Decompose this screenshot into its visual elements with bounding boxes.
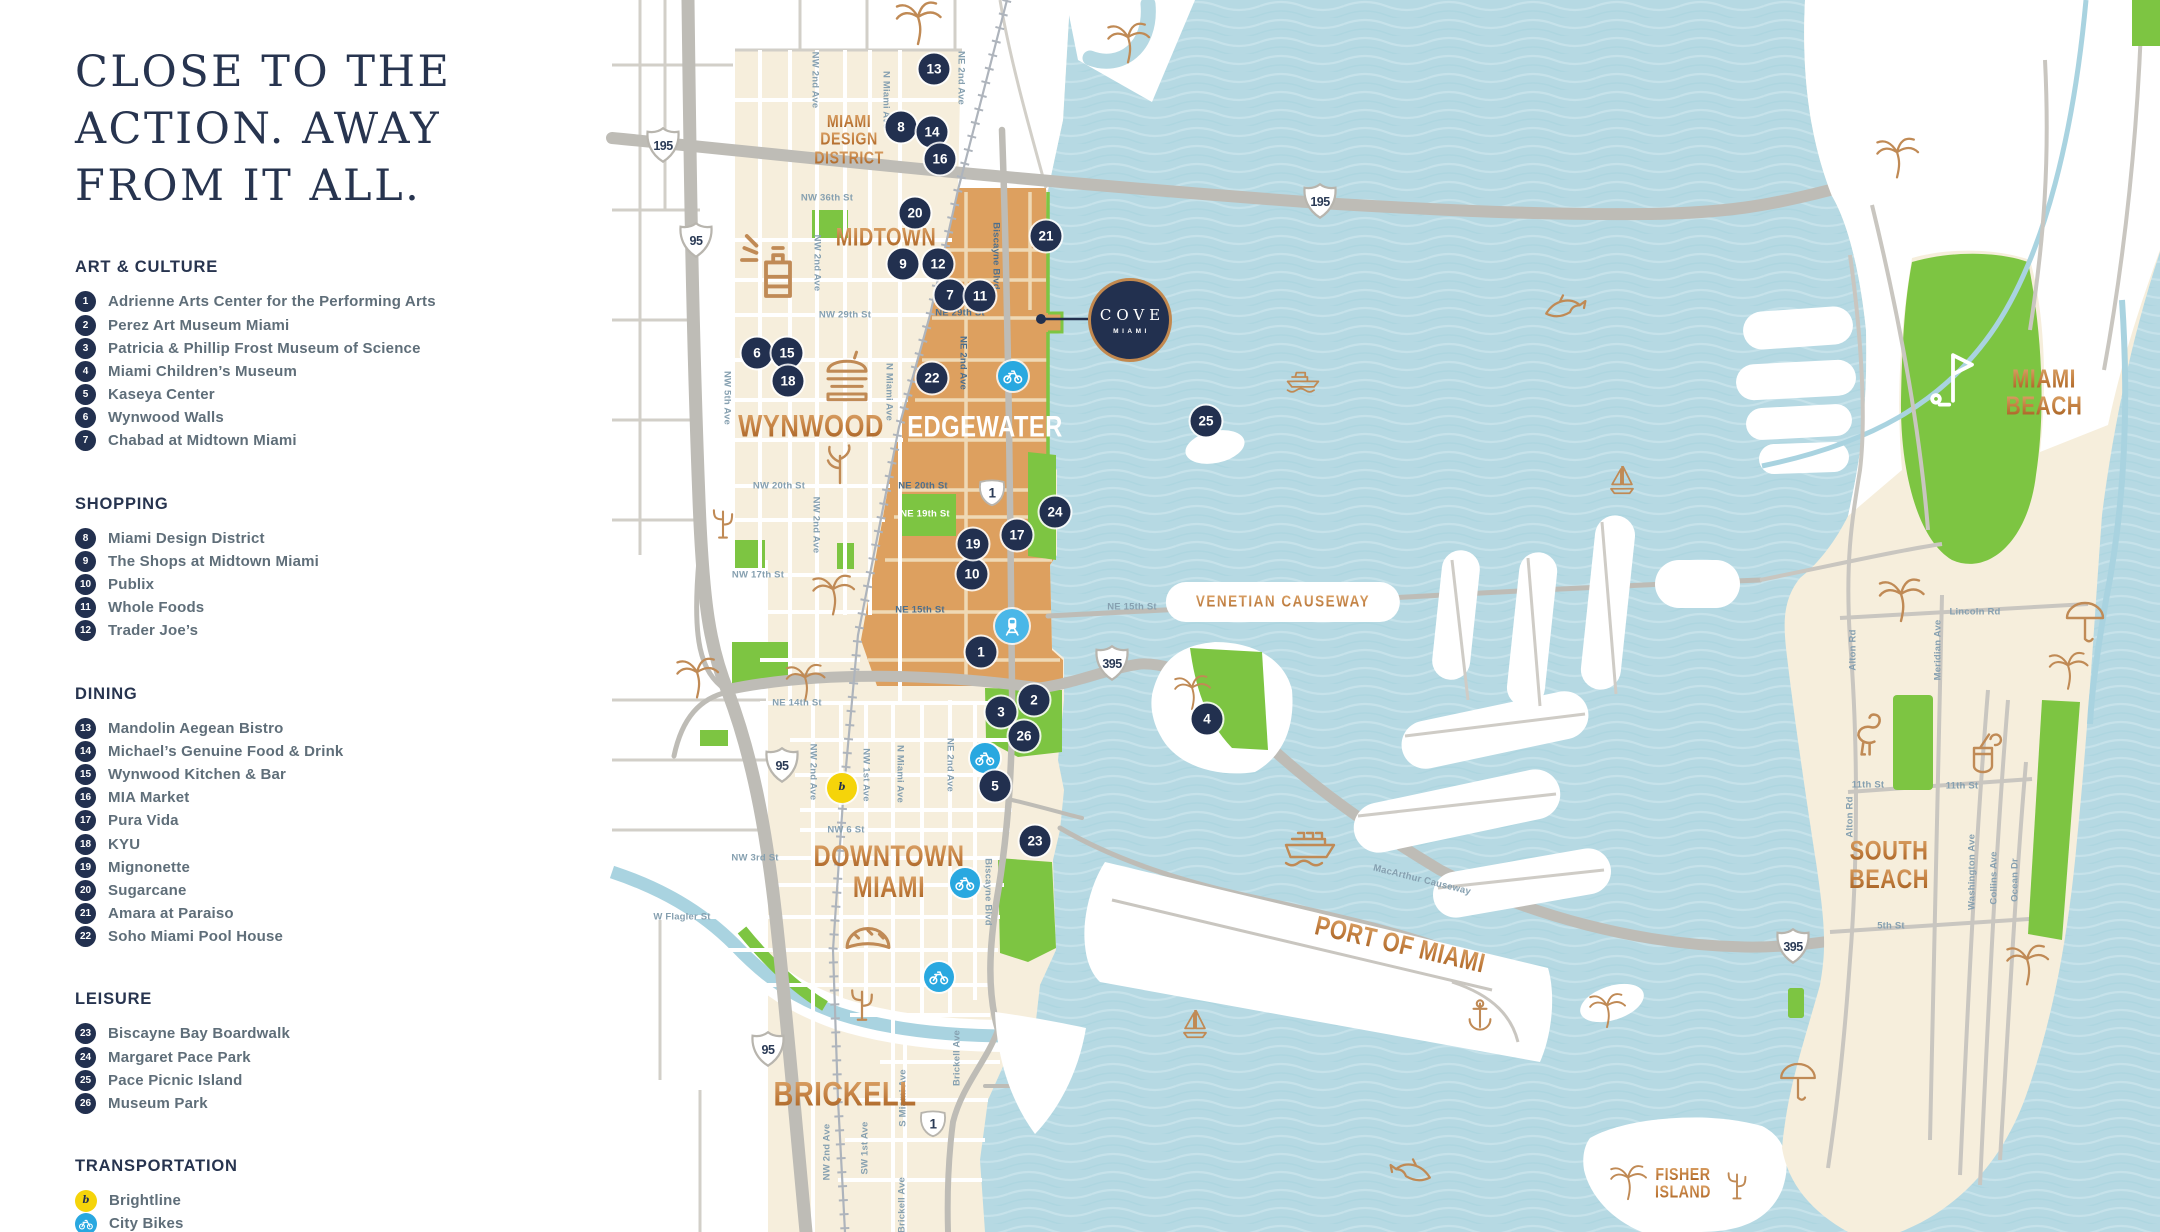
list-item: 1Adrienne Arts Center for the Performing…: [75, 290, 515, 313]
map-marker-26: 26: [1009, 721, 1040, 752]
metromover-icon: [995, 609, 1029, 643]
page-title: CLOSE TO THE ACTION. AWAY FROM IT ALL.: [75, 44, 515, 214]
list-item: 11Whole Foods: [75, 596, 515, 619]
marker-badge: 8: [75, 528, 96, 549]
marker-badge: 9: [75, 551, 96, 572]
list-item: 22Soho Miami Pool House: [75, 925, 515, 948]
map-marker-17: 17: [1002, 520, 1033, 551]
list-item: 10Publix: [75, 573, 515, 596]
poi-label: Trader Joe’s: [108, 622, 198, 639]
shield-number: 395: [1783, 940, 1802, 954]
street-label: NW 2nd Ave: [810, 52, 821, 109]
list-item: 15Wynwood Kitchen & Bar: [75, 763, 515, 786]
citybike-icon: [950, 868, 980, 898]
list-item: 16MIA Market: [75, 786, 515, 809]
poi-list: 13Mandolin Aegean Bistro14Michael’s Genu…: [75, 717, 515, 949]
poi-section: LEISURE23Biscayne Bay Boardwalk24Margare…: [75, 990, 515, 1115]
poi-label: Sugarcane: [108, 882, 187, 899]
list-item: 2Perez Art Museum Miami: [75, 313, 515, 336]
marker-badge: 19: [75, 857, 96, 878]
street-label: 5th St: [1877, 921, 1905, 932]
section-title: DINING: [75, 685, 515, 704]
poi-label: Publix: [108, 576, 154, 593]
map-marker-12: 12: [923, 249, 954, 280]
highway-shield-195: 195: [1302, 183, 1338, 219]
street-label: Biscayne Blvd: [991, 222, 1002, 290]
poi-legend: ART & CULTURE1Adrienne Arts Center for t…: [75, 258, 515, 1232]
street-label: NW 2nd Ave: [811, 497, 822, 554]
citybike-icon: [998, 361, 1028, 391]
marker-badge: 13: [75, 718, 96, 739]
marker-badge: 7: [75, 430, 96, 451]
poi-section: SHOPPING8Miami Design District9The Shops…: [75, 495, 515, 643]
street-label: NE 19th St: [900, 509, 950, 520]
list-item: 20Sugarcane: [75, 879, 515, 902]
street-label: Brickell Ave: [952, 1030, 963, 1086]
area-label-miami-design-district: MIAMIDESIGNDISTRICT: [814, 113, 884, 168]
map-marker-16: 16: [925, 144, 956, 175]
poi-list: 1Adrienne Arts Center for the Performing…: [75, 290, 515, 452]
marker-badge: 10: [75, 574, 96, 595]
street-label: NE 15th St: [895, 605, 945, 616]
street-label: 11th St: [1946, 781, 1979, 792]
street-label: Biscayne Blvd: [983, 858, 994, 926]
marker-badge: 23: [75, 1023, 96, 1044]
shield-number: 95: [762, 1043, 775, 1057]
poi-label: Michael’s Genuine Food & Drink: [108, 743, 343, 760]
poi-label: Adrienne Arts Center for the Performing …: [108, 293, 436, 310]
area-label-venetian-causeway: VENETIAN CAUSEWAY: [1166, 582, 1400, 622]
map-marker-8: 8: [886, 112, 917, 143]
street-label: N Miami Ave: [884, 363, 895, 421]
area-label-miami-beach: MIAMIBEACH: [2006, 366, 2083, 419]
poi-list: 23Biscayne Bay Boardwalk24Margaret Pace …: [75, 1022, 515, 1115]
marker-badge: 14: [75, 741, 96, 762]
street-label: N Miami Ave: [895, 745, 906, 803]
highway-shield-1: 1: [918, 1108, 949, 1139]
map-marker-18: 18: [773, 366, 804, 397]
poi-label: Margaret Pace Park: [108, 1049, 251, 1066]
shield-number: 195: [653, 139, 672, 153]
area-label-port-of-miami: PORT OF MIAMI: [1312, 912, 1488, 978]
marker-badge: 20: [75, 880, 96, 901]
street-label: NW 6 St: [827, 825, 864, 836]
title-line: CLOSE TO THE: [75, 44, 515, 101]
poi-label: Wynwood Walls: [108, 409, 224, 426]
street-label: Brickell Ave: [897, 1177, 908, 1232]
citybike-icon: [924, 962, 954, 992]
poi-label: Brightline: [109, 1192, 181, 1209]
citybike-icon: [970, 743, 1000, 773]
marker-badge: 1: [75, 291, 96, 312]
highway-shield-395: 395: [1775, 928, 1811, 964]
poi-label: Pura Vida: [108, 812, 179, 829]
marker-badge: 12: [75, 620, 96, 641]
title-line: ACTION. AWAY: [75, 101, 515, 158]
map-marker-1: 1: [966, 637, 997, 668]
list-item: 7Chabad at Midtown Miami: [75, 429, 515, 452]
poi-label: Amara at Paraiso: [108, 905, 234, 922]
marker-badge: 22: [75, 926, 96, 947]
shield-number: 1: [988, 485, 995, 500]
section-title: ART & CULTURE: [75, 258, 515, 277]
brightline-icon: b: [827, 773, 857, 803]
marker-badge: 17: [75, 810, 96, 831]
brightline-icon: b: [75, 1190, 97, 1212]
street-label: NW 29th St: [819, 310, 871, 321]
poi-list: bBrightlineCity BikesAdrienne Arsht Metr…: [75, 1189, 515, 1232]
cove-sub: MIAMI: [1113, 328, 1150, 335]
list-item: 13Mandolin Aegean Bistro: [75, 717, 515, 740]
highway-shield-95: 95: [750, 1031, 786, 1067]
poi-label: Miami Design District: [108, 530, 265, 547]
poi-label: KYU: [108, 836, 140, 853]
shield-number: 95: [690, 234, 703, 248]
street-label: NW 1st Ave: [861, 748, 872, 802]
map-marker-9: 9: [888, 249, 919, 280]
marker-badge: 6: [75, 407, 96, 428]
list-item: 5Kaseya Center: [75, 383, 515, 406]
sidebar: CLOSE TO THE ACTION. AWAY FROM IT ALL. A…: [75, 44, 515, 1232]
street-label: NW 2nd Ave: [808, 744, 819, 801]
map-marker-13: 13: [919, 54, 950, 85]
street-label: Collins Ave: [1989, 851, 2000, 904]
street-label: NW 20th St: [753, 481, 805, 492]
list-item: bBrightline: [75, 1189, 515, 1212]
section-title: TRANSPORTATION: [75, 1157, 515, 1176]
map-marker-3: 3: [986, 697, 1017, 728]
poi-section: TRANSPORTATIONbBrightlineCity BikesAdrie…: [75, 1157, 515, 1232]
marker-badge: 16: [75, 787, 96, 808]
map-marker-24: 24: [1040, 497, 1071, 528]
map-marker-6: 6: [742, 338, 773, 369]
map-marker-2: 2: [1019, 685, 1050, 716]
map-marker-11: 11: [965, 281, 996, 312]
list-item: City Bikes: [75, 1212, 515, 1232]
poi-label: The Shops at Midtown Miami: [108, 553, 319, 570]
list-item: 9The Shops at Midtown Miami: [75, 550, 515, 573]
street-label: NW 17th St: [732, 570, 784, 581]
poi-label: Kaseya Center: [108, 386, 215, 403]
marker-badge: 11: [75, 597, 96, 618]
list-item: 17Pura Vida: [75, 809, 515, 832]
area-label-wynwood: WYNWOOD: [738, 411, 884, 444]
poi-label: Patricia & Phillip Frost Museum of Scien…: [108, 340, 421, 357]
poi-label: Mignonette: [108, 859, 190, 876]
street-label: W Flagler St: [653, 912, 710, 923]
street-label: NW 2nd Ave: [812, 235, 823, 292]
list-item: 25Pace Picnic Island: [75, 1069, 515, 1092]
shield-number: 195: [1310, 195, 1329, 209]
street-label: NW 5th Ave: [722, 371, 733, 425]
map-marker-5: 5: [980, 771, 1011, 802]
street-label: NW 2nd Ave: [822, 1124, 833, 1181]
cove-name: COVE: [1100, 306, 1165, 324]
marker-badge: 2: [75, 315, 96, 336]
list-item: 19Mignonette: [75, 856, 515, 879]
map-marker-10: 10: [957, 559, 988, 590]
poi-label: Perez Art Museum Miami: [108, 317, 289, 334]
street-label: Washington Ave: [1967, 834, 1978, 910]
highway-shield-95: 95: [678, 222, 714, 258]
poi-label: Miami Children’s Museum: [108, 363, 297, 380]
poi-section: ART & CULTURE1Adrienne Arts Center for t…: [75, 258, 515, 452]
map-marker-20: 20: [900, 198, 931, 229]
street-label: Alton Rd: [1845, 796, 1856, 837]
marker-badge: 3: [75, 338, 96, 359]
poi-section: DINING13Mandolin Aegean Bistro14Michael’…: [75, 685, 515, 949]
list-item: 12Trader Joe’s: [75, 619, 515, 642]
street-label: Alton Rd: [1848, 629, 1859, 670]
street-label: NE 15th St: [1107, 602, 1157, 613]
map-marker-7: 7: [935, 280, 966, 311]
highway-shield-1: 1: [977, 477, 1008, 508]
poi-label: City Bikes: [109, 1215, 184, 1232]
area-label-brickell: BRICKELL: [773, 1078, 916, 1113]
area-label-downtown-miami: DOWNTOWNMIAMI: [813, 843, 964, 904]
section-title: SHOPPING: [75, 495, 515, 514]
area-label-fisher-island: FISHERISLAND: [1655, 1166, 1711, 1202]
cove-miami-badge: COVE MIAMI: [1088, 278, 1172, 362]
street-label: NE 20th St: [898, 481, 948, 492]
street-label: NW 36th St: [801, 193, 853, 204]
shield-number: 395: [1102, 657, 1121, 671]
poi-list: 8Miami Design District9The Shops at Midt…: [75, 527, 515, 643]
area-label-edgewater: EDGEWATER: [907, 413, 1063, 443]
list-item: 18KYU: [75, 832, 515, 855]
highway-shield-195: 195: [645, 127, 681, 163]
poi-label: Biscayne Bay Boardwalk: [108, 1025, 290, 1042]
map-marker-23: 23: [1020, 826, 1051, 857]
street-label: NE 2nd Ave: [958, 336, 969, 390]
map-marker-15: 15: [772, 338, 803, 369]
marker-badge: 21: [75, 903, 96, 924]
poi-label: Pace Picnic Island: [108, 1072, 243, 1089]
list-item: 26Museum Park: [75, 1092, 515, 1115]
street-label: 11th St: [1852, 780, 1885, 791]
poi-label: Museum Park: [108, 1095, 208, 1112]
street-label: NW 3rd St: [731, 853, 778, 864]
marker-badge: 24: [75, 1047, 96, 1068]
street-label: NE 2nd Ave: [945, 738, 956, 792]
street-label: NE 2nd Ave: [956, 51, 967, 105]
list-item: 6Wynwood Walls: [75, 406, 515, 429]
shield-number: 95: [776, 759, 789, 773]
marker-badge: 5: [75, 384, 96, 405]
street-label: SW 1st Ave: [860, 1121, 871, 1174]
list-item: 24Margaret Pace Park: [75, 1046, 515, 1069]
poi-label: Soho Miami Pool House: [108, 928, 283, 945]
poi-label: Chabad at Midtown Miami: [108, 432, 297, 449]
marker-badge: 26: [75, 1093, 96, 1114]
title-line: FROM IT ALL.: [75, 158, 515, 215]
map-marker-4: 4: [1192, 704, 1223, 735]
poi-label: MIA Market: [108, 789, 189, 806]
highway-shield-395: 395: [1094, 645, 1130, 681]
street-label: Meridian Ave: [1933, 620, 1944, 681]
marker-badge: 18: [75, 834, 96, 855]
map-marker-25: 25: [1191, 406, 1222, 437]
map-marker-21: 21: [1031, 221, 1062, 252]
marker-badge: 25: [75, 1070, 96, 1091]
page: COVE MIAMI NW 36th StNW 29th StNE 29th S…: [0, 0, 2160, 1232]
list-item: 23Biscayne Bay Boardwalk: [75, 1022, 515, 1045]
list-item: 3Patricia & Phillip Frost Museum of Scie…: [75, 337, 515, 360]
street-label: Ocean Dr: [2010, 858, 2021, 902]
street-label: Lincoln Rd: [1949, 607, 2000, 618]
list-item: 14Michael’s Genuine Food & Drink: [75, 740, 515, 763]
area-label-midtown: MIDTOWN: [836, 225, 936, 251]
poi-label: Mandolin Aegean Bistro: [108, 720, 284, 737]
poi-label: Wynwood Kitchen & Bar: [108, 766, 286, 783]
section-title: LEISURE: [75, 990, 515, 1009]
street-label: MacArthur Causeway: [1372, 863, 1472, 898]
highway-shield-95: 95: [764, 747, 800, 783]
list-item: 21Amara at Paraiso: [75, 902, 515, 925]
list-item: 8Miami Design District: [75, 527, 515, 550]
citybike-icon: [75, 1213, 97, 1232]
map-marker-22: 22: [917, 363, 948, 394]
shield-number: 1: [929, 1116, 936, 1131]
map-marker-19: 19: [958, 529, 989, 560]
area-label-south-beach: SOUTHBEACH: [1849, 837, 1929, 893]
list-item: 4Miami Children’s Museum: [75, 360, 515, 383]
street-label: NE 14th St: [772, 698, 822, 709]
marker-badge: 15: [75, 764, 96, 785]
poi-label: Whole Foods: [108, 599, 204, 616]
marker-badge: 4: [75, 361, 96, 382]
